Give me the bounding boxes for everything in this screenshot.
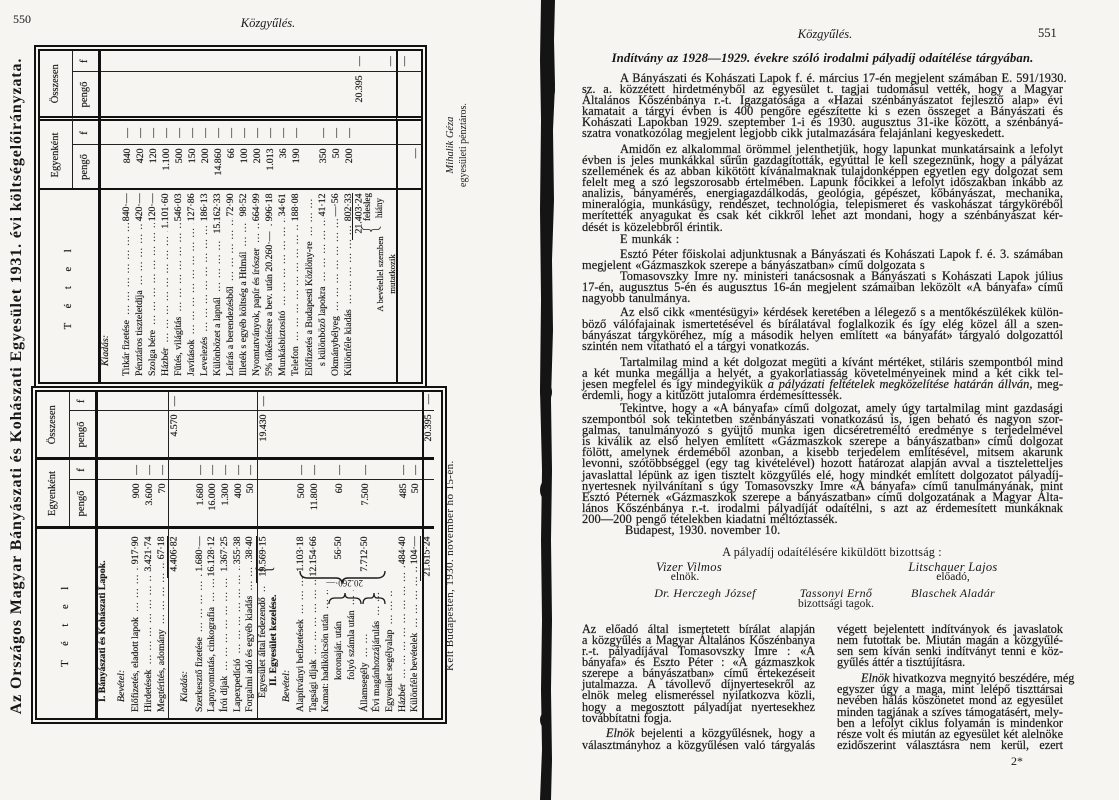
svg-text:20.260·—: 20.260·— (325, 578, 363, 588)
